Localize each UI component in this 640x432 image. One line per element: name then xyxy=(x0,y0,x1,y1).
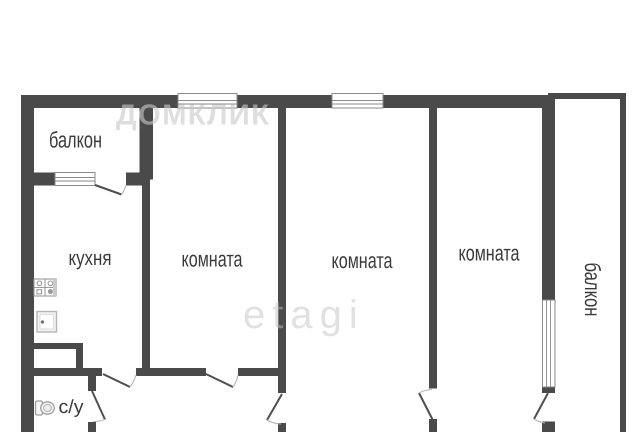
svg-text:комната: комната xyxy=(182,247,244,272)
svg-text:кухня: кухня xyxy=(69,247,112,270)
svg-text:балкон: балкон xyxy=(580,263,605,317)
svg-text:etagi: etagi xyxy=(243,293,365,337)
svg-text:ДОМКЛИК: ДОМКЛИК xyxy=(116,100,270,132)
svg-text:балкон: балкон xyxy=(49,128,102,153)
svg-text:с/у: с/у xyxy=(59,397,85,418)
svg-text:комната: комната xyxy=(332,248,394,273)
svg-text:комната: комната xyxy=(459,241,521,266)
